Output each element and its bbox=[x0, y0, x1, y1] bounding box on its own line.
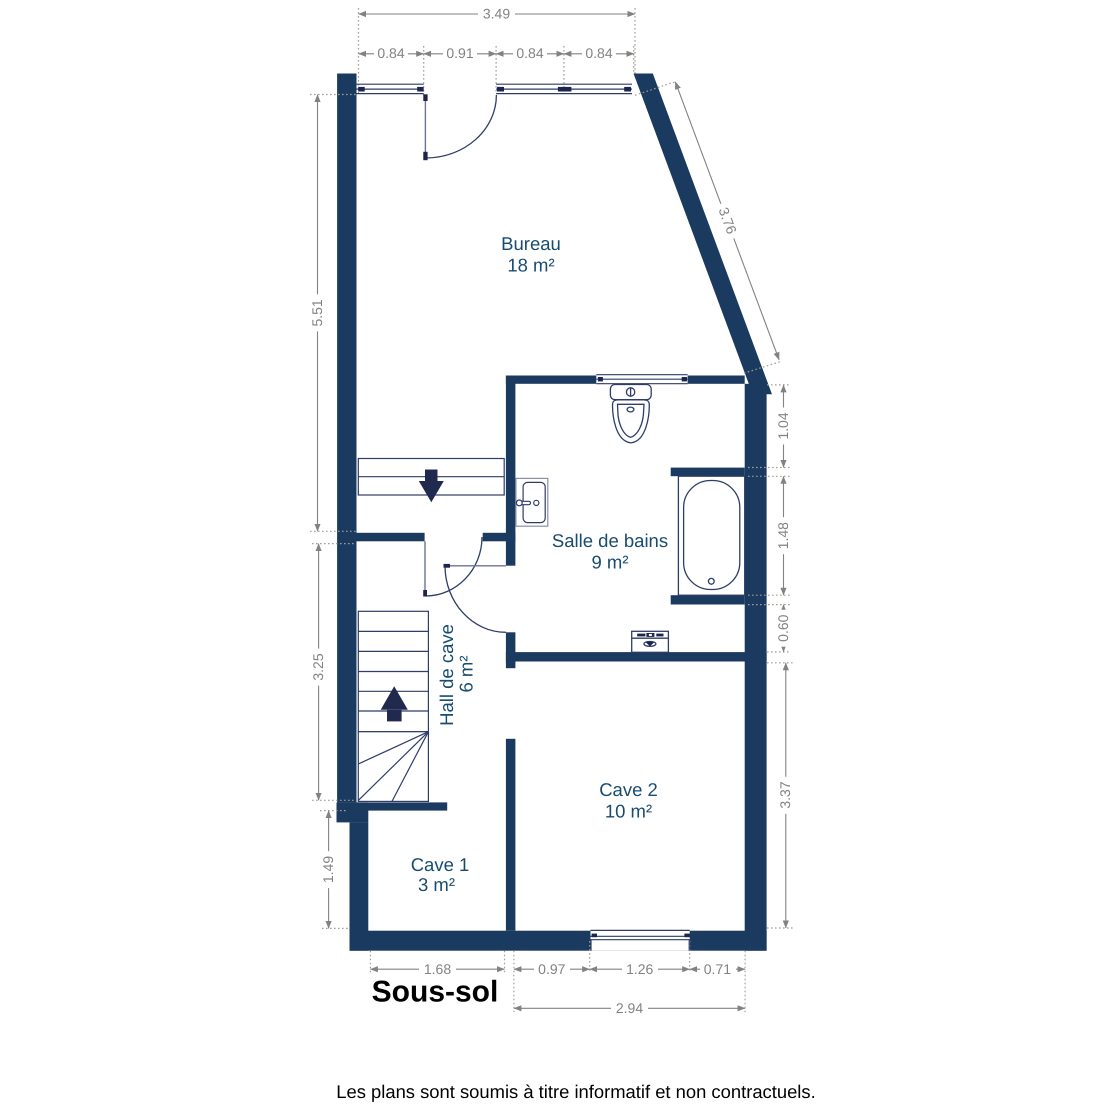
svg-text:0.84: 0.84 bbox=[585, 45, 612, 61]
svg-text:0.60: 0.60 bbox=[775, 614, 791, 641]
svg-text:1.49: 1.49 bbox=[320, 856, 336, 883]
svg-text:0.84: 0.84 bbox=[377, 45, 404, 61]
svg-text:5.51: 5.51 bbox=[309, 299, 325, 326]
svg-text:0.97: 0.97 bbox=[538, 961, 565, 977]
svg-text:1.48: 1.48 bbox=[775, 522, 791, 549]
svg-text:Les plans sont soumis à titre: Les plans sont soumis à titre informatif… bbox=[336, 1081, 815, 1102]
svg-text:3.25: 3.25 bbox=[310, 653, 326, 680]
svg-text:2.94: 2.94 bbox=[616, 1000, 643, 1016]
svg-text:3.76: 3.76 bbox=[715, 205, 740, 236]
svg-text:Hall de cave: Hall de cave bbox=[436, 624, 457, 726]
svg-text:9 m²: 9 m² bbox=[592, 552, 629, 573]
svg-text:Bureau: Bureau bbox=[501, 233, 561, 254]
svg-text:3.37: 3.37 bbox=[777, 781, 793, 808]
svg-text:Sous-sol: Sous-sol bbox=[372, 976, 499, 1009]
svg-text:10 m²: 10 m² bbox=[605, 801, 652, 822]
svg-text:0.84: 0.84 bbox=[516, 45, 543, 61]
svg-text:0.71: 0.71 bbox=[704, 961, 731, 977]
svg-text:1.68: 1.68 bbox=[424, 961, 451, 977]
svg-text:Salle de bains: Salle de bains bbox=[552, 530, 668, 551]
svg-text:Cave 1: Cave 1 bbox=[411, 854, 470, 875]
svg-text:Cave 2: Cave 2 bbox=[599, 779, 658, 800]
svg-text:0.91: 0.91 bbox=[446, 45, 473, 61]
svg-text:3 m²: 3 m² bbox=[418, 874, 455, 895]
svg-text:1.26: 1.26 bbox=[626, 961, 653, 977]
svg-text:18 m²: 18 m² bbox=[507, 255, 554, 276]
svg-text:1.04: 1.04 bbox=[775, 412, 791, 439]
svg-text:3.49: 3.49 bbox=[483, 5, 510, 21]
svg-text:6 m²: 6 m² bbox=[455, 656, 476, 693]
